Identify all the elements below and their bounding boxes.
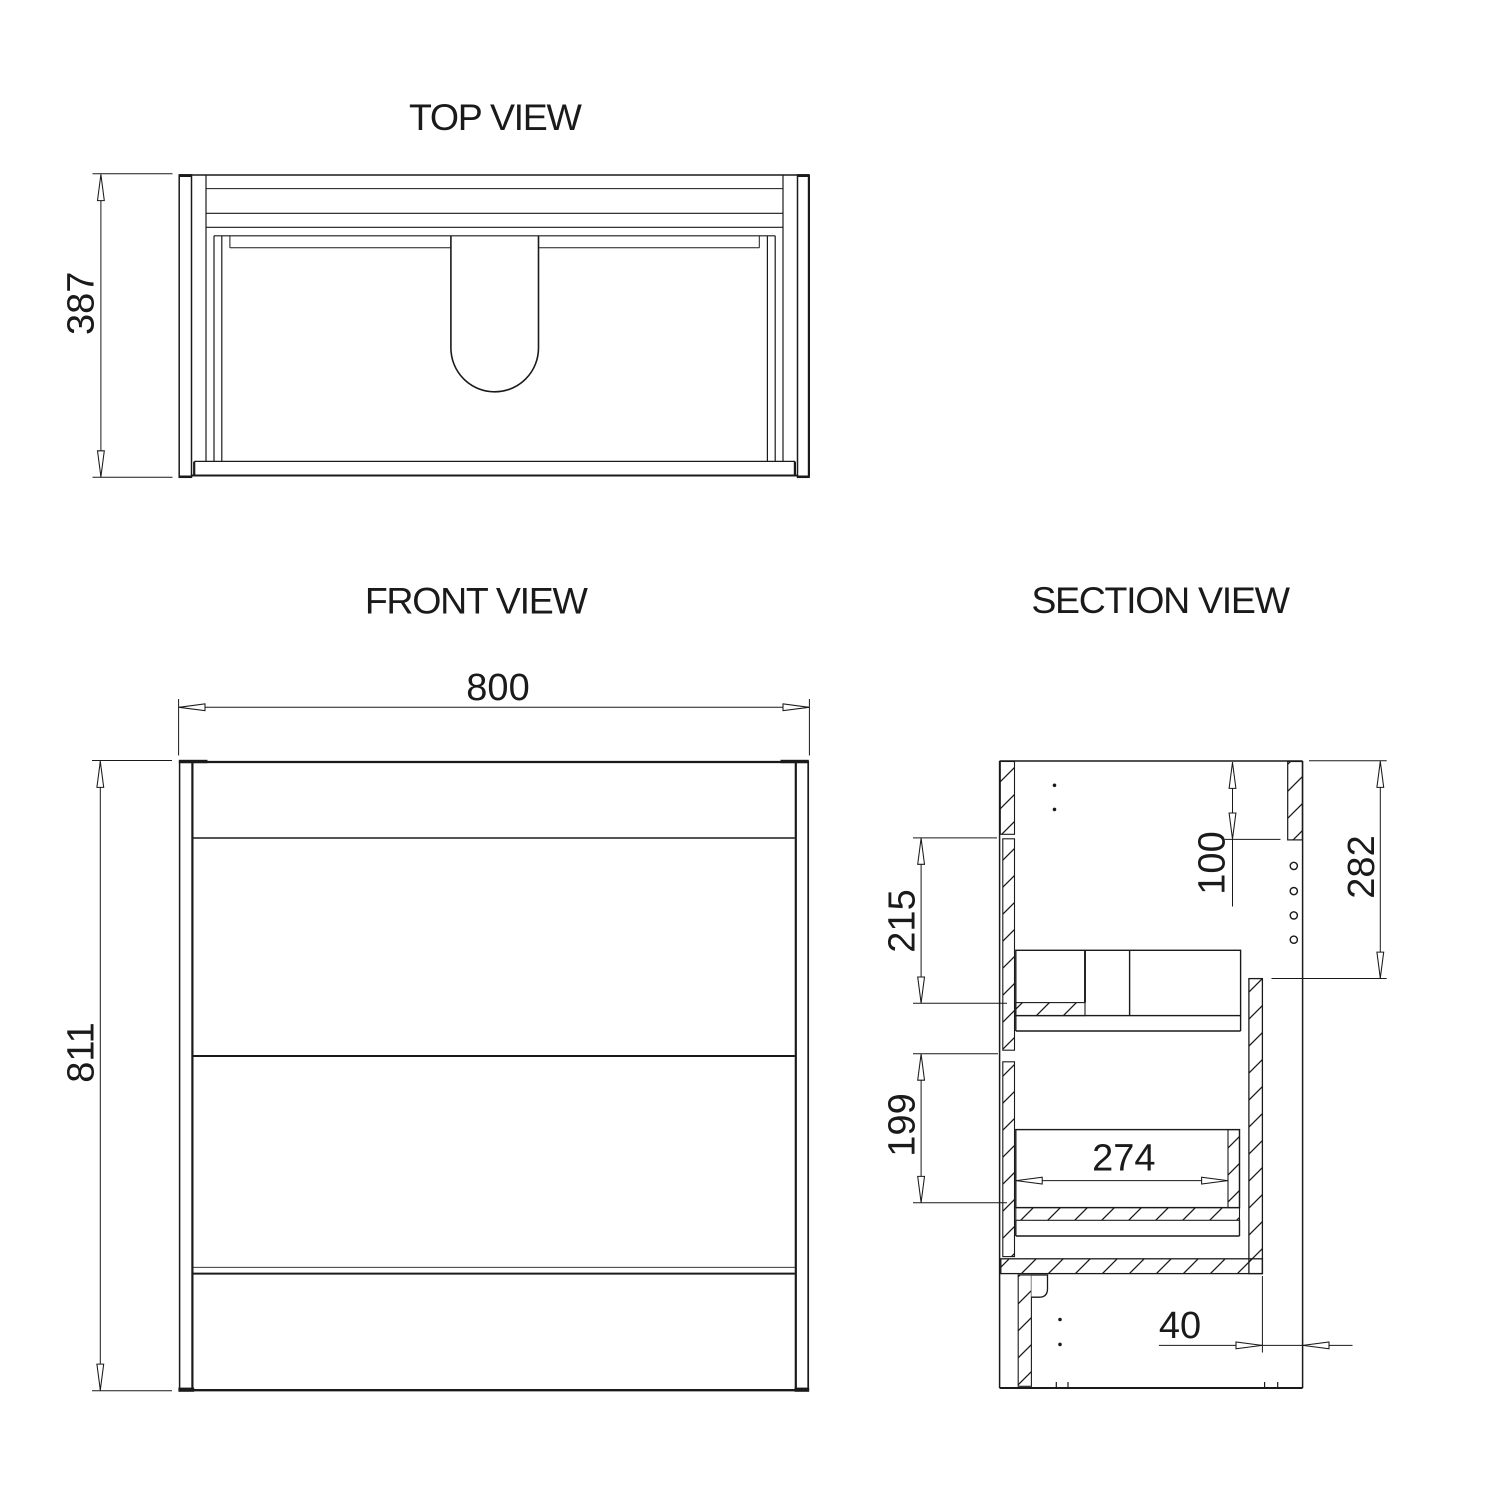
svg-text:199: 199 [881,1093,923,1156]
svg-text:282: 282 [1341,835,1383,898]
svg-text:811: 811 [60,1022,102,1083]
svg-text:FRONT VIEW: FRONT VIEW [365,579,589,621]
svg-text:TOP VIEW: TOP VIEW [409,96,582,138]
svg-text:215: 215 [881,889,923,952]
svg-text:40: 40 [1159,1305,1201,1347]
svg-text:SECTION VIEW: SECTION VIEW [1031,579,1290,621]
svg-text:274: 274 [1092,1138,1155,1180]
svg-text:387: 387 [61,272,103,335]
svg-text:800: 800 [466,667,529,709]
svg-text:100: 100 [1192,831,1234,894]
